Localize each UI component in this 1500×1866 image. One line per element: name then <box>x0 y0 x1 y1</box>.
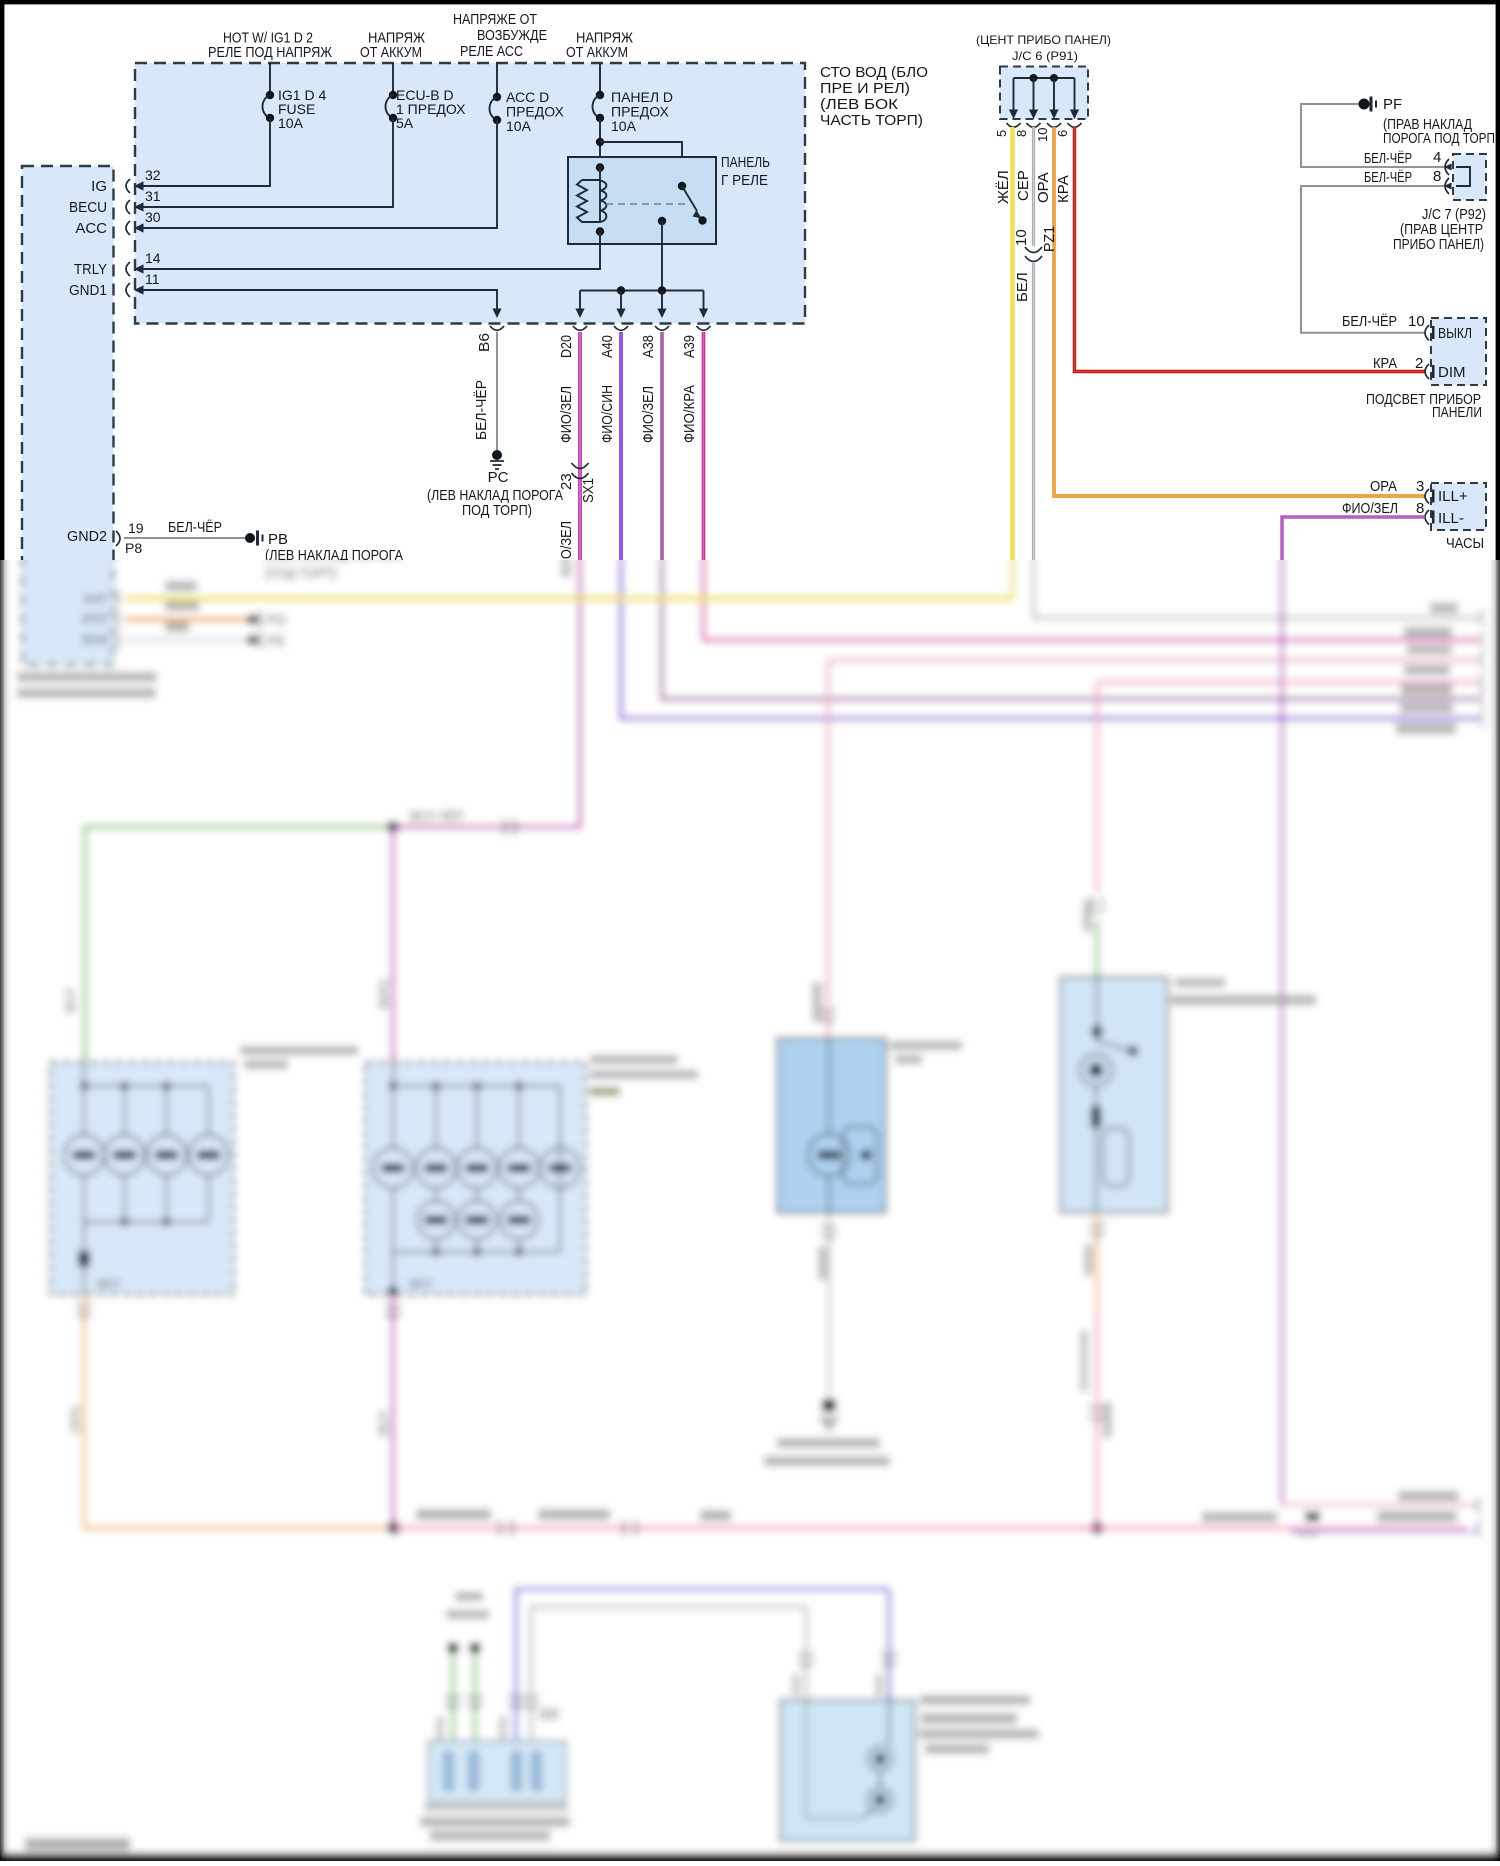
svg-text:КРА: КРА <box>1055 175 1072 203</box>
svg-text:6: 6 <box>1055 130 1070 137</box>
svg-text:A40: A40 <box>599 335 616 358</box>
svg-text:30: 30 <box>145 209 161 225</box>
svg-text:32: 32 <box>145 167 161 183</box>
svg-text:2: 2 <box>1415 355 1423 372</box>
svg-text:8: 8 <box>1014 130 1029 137</box>
svg-text:PZ1: PZ1 <box>1041 226 1058 252</box>
svg-text:СЕР: СЕР <box>1015 170 1032 201</box>
svg-text:БЕЛ-ЧЁР: БЕЛ-ЧЁР <box>1364 150 1412 167</box>
svg-text:GND2: GND2 <box>67 528 107 545</box>
svg-text:5: 5 <box>994 130 1009 137</box>
svg-text:ВЫКЛ: ВЫКЛ <box>1438 325 1472 342</box>
svg-text:10A: 10A <box>506 118 532 134</box>
svg-text:10: 10 <box>1013 229 1030 246</box>
svg-text:31: 31 <box>145 188 161 204</box>
svg-text:БЕЛ-ЧЁР: БЕЛ-ЧЁР <box>473 380 490 440</box>
svg-text:ФИО/КРА: ФИО/КРА <box>681 385 698 443</box>
svg-text:14: 14 <box>145 250 161 266</box>
svg-text:ЧАСЫ: ЧАСЫ <box>1446 535 1484 552</box>
svg-text:НАПРЯЖЕ ОТ: НАПРЯЖЕ ОТ <box>453 11 537 28</box>
svg-text:ФИО/СИН: ФИО/СИН <box>599 385 616 443</box>
svg-text:5A: 5A <box>396 115 414 131</box>
svg-text:A38: A38 <box>640 335 657 358</box>
svg-text:БЕЛ-ЧЁР: БЕЛ-ЧЁР <box>1342 313 1397 330</box>
svg-text:ПОД ТОРП): ПОД ТОРП) <box>462 502 532 519</box>
svg-text:8: 8 <box>1433 168 1441 185</box>
svg-text:DIM: DIM <box>1438 364 1466 381</box>
svg-text:ФИО/ЗЕЛ: ФИО/ЗЕЛ <box>640 386 657 443</box>
svg-text:TRLY: TRLY <box>74 261 107 278</box>
svg-text:D20: D20 <box>558 335 575 358</box>
svg-text:11: 11 <box>145 271 160 287</box>
svg-text:РЕЛЕ АСС: РЕЛЕ АСС <box>460 43 523 60</box>
svg-text:ILL+: ILL+ <box>1438 488 1468 505</box>
svg-text:(ЦЕНТ ПРИБО ПАНЕЛ): (ЦЕНТ ПРИБО ПАНЕЛ) <box>976 33 1111 47</box>
svg-text:3: 3 <box>1416 478 1424 495</box>
svg-text:IG: IG <box>91 178 107 195</box>
svg-text:B6: B6 <box>476 333 493 352</box>
svg-text:БЕЛ-ЧЁР: БЕЛ-ЧЁР <box>168 519 222 536</box>
svg-text:БЕЛ-ЧЁР: БЕЛ-ЧЁР <box>1364 169 1412 186</box>
svg-text:ILL-: ILL- <box>1438 510 1464 527</box>
svg-text:8: 8 <box>1416 500 1424 517</box>
svg-text:ПОРОГА ПОД ТОРП: ПОРОГА ПОД ТОРП <box>1383 130 1495 147</box>
svg-text:10: 10 <box>1035 128 1050 142</box>
svg-text:GND1: GND1 <box>69 282 107 299</box>
svg-text:КРА: КРА <box>1373 355 1397 372</box>
svg-text:ACC: ACC <box>75 220 107 237</box>
svg-text:4: 4 <box>1433 149 1441 166</box>
svg-text:PF: PF <box>1383 96 1402 113</box>
svg-text:(ЛЕВ БОК: (ЛЕВ БОК <box>820 96 898 113</box>
svg-text:ПРИБО ПАНЕЛ): ПРИБО ПАНЕЛ) <box>1393 236 1484 253</box>
svg-text:ПАНЕЛИ: ПАНЕЛИ <box>1432 404 1482 421</box>
svg-text:P8: P8 <box>125 540 142 556</box>
svg-text:J/C 6 (P91): J/C 6 (P91) <box>1012 49 1078 63</box>
svg-text:СТО ВОД (БЛО: СТО ВОД (БЛО <box>820 64 928 81</box>
svg-text:ФИО/ЗЕЛ: ФИО/ЗЕЛ <box>558 386 575 443</box>
svg-text:PB: PB <box>268 531 288 548</box>
svg-text:SX1: SX1 <box>580 478 597 503</box>
svg-text:ФИО/ЗЕЛ: ФИО/ЗЕЛ <box>1342 500 1398 517</box>
svg-text:23: 23 <box>558 473 575 490</box>
svg-text:Г РЕЛЕ: Г РЕЛЕ <box>721 172 768 189</box>
svg-text:PC: PC <box>488 469 509 486</box>
svg-text:10A: 10A <box>278 115 304 131</box>
svg-text:ВОЗБУЖДЕ: ВОЗБУЖДЕ <box>477 27 547 44</box>
svg-text:ОРА: ОРА <box>1370 478 1397 495</box>
svg-text:BECU: BECU <box>69 199 107 216</box>
svg-text:ОТ АККУМ: ОТ АККУМ <box>360 44 422 61</box>
svg-text:10A: 10A <box>611 118 637 134</box>
svg-text:ПАНЕЛЬ: ПАНЕЛЬ <box>721 154 770 171</box>
svg-text:19: 19 <box>128 520 144 536</box>
svg-text:10: 10 <box>1408 313 1425 330</box>
svg-text:ОРА: ОРА <box>1035 172 1052 203</box>
svg-text:БЕЛ: БЕЛ <box>1014 272 1031 302</box>
svg-text:ЧАСТЬ ТОРП): ЧАСТЬ ТОРП) <box>820 112 923 129</box>
svg-text:ОТ АККУМ: ОТ АККУМ <box>566 44 628 61</box>
svg-text:РЕЛЕ ПОД НАПРЯЖ: РЕЛЕ ПОД НАПРЯЖ <box>208 44 332 61</box>
svg-text:A39: A39 <box>681 335 698 358</box>
svg-text:ПРЕ И РЕЛ): ПРЕ И РЕЛ) <box>820 80 910 97</box>
svg-text:ЖЁЛ: ЖЁЛ <box>995 170 1012 204</box>
